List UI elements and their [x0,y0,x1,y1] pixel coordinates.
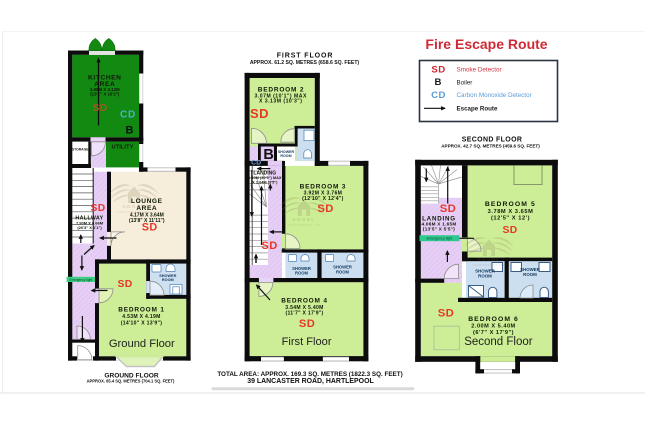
svg-text:2.00M X 5.40M: 2.00M X 5.40M [471,324,515,330]
svg-text:SECOND FLOOR: SECOND FLOOR [462,136,523,143]
svg-text:(12'5" X 12'): (12'5" X 12') [491,215,530,221]
svg-text:SD: SD [502,225,517,236]
svg-text:Escape Route: Escape Route [457,106,498,113]
svg-text:CD: CD [120,110,136,121]
svg-text:B: B [263,147,273,163]
svg-text:CD: CD [431,90,446,101]
svg-text:APPROX. 42.7 SQ. METRES (459.6: APPROX. 42.7 SQ. METRES (459.6 SQ. FEET) [441,144,540,149]
svg-text:4.53M X 4.19M: 4.53M X 4.19M [122,314,160,320]
svg-text:SD: SD [438,308,455,320]
svg-text:UTILITY: UTILITY [112,145,134,151]
svg-text:B: B [435,77,442,88]
svg-text:B: B [126,125,134,137]
svg-text:BEDROOM 6: BEDROOM 6 [468,316,519,323]
svg-text:ROOM: ROOM [295,271,309,276]
svg-text:SD: SD [250,106,269,121]
svg-text:SD: SD [261,240,277,252]
svg-text:Emergency light: Emergency light [69,278,92,282]
svg-text:SD: SD [431,64,445,75]
svg-text:BEDROOM 5: BEDROOM 5 [485,201,536,208]
svg-text:BEDROOM 3: BEDROOM 3 [300,183,347,190]
svg-text:SD: SD [117,279,132,290]
svg-text:LOUNGE: LOUNGE [131,198,163,205]
svg-text:FIRST FLOOR: FIRST FLOOR [277,53,334,60]
svg-text:SD: SD [317,203,333,215]
svg-text:Carbon Monoxide Detector: Carbon Monoxide Detector [457,92,532,99]
svg-text:Smoke Detector: Smoke Detector [457,67,502,74]
svg-text:BEDROOM 1: BEDROOM 1 [118,307,165,314]
svg-text:ROOM: ROOM [478,273,492,278]
svg-text:(12'10" X 12'4"): (12'10" X 12'4") [302,196,344,202]
svg-text:(13'1" X 10'2"): (13'1" X 10'2") [90,91,120,96]
svg-text:39 LANCASTER ROAD, HARTLEPOOL: 39 LANCASTER ROAD, HARTLEPOOL [247,378,374,385]
svg-text:ROOM: ROOM [523,272,537,277]
svg-text:X 3.13M (10'3"): X 3.13M (10'3") [259,99,302,105]
svg-text:(11'7" X 17'9"): (11'7" X 17'9") [285,311,323,317]
svg-text:ROOM: ROOM [336,269,350,274]
svg-text:(6'7" X 17'9"): (6'7" X 17'9") [473,330,514,336]
svg-text:SD: SD [440,203,457,215]
svg-text:ROOM: ROOM [280,154,291,158]
svg-text:3.78M X 3.65M: 3.78M X 3.65M [488,209,534,215]
svg-text:Second Floor: Second Floor [464,336,533,348]
svg-text:Fire Escape Route: Fire Escape Route [425,36,547,52]
svg-text:X 1.04M (3'5"): X 1.04M (3'5") [252,180,278,185]
svg-text:SD: SD [90,203,105,214]
svg-text:APPROX. 61.2 SQ. METRES (658.6: APPROX. 61.2 SQ. METRES (658.6 SQ. FEET) [250,60,360,66]
svg-text:(13'5" X 5'5"): (13'5" X 5'5") [423,226,455,231]
svg-text:TOTAL AREA: APPROX. 169.3 SQ.: TOTAL AREA: APPROX. 169.3 SQ. METRES (18… [217,371,402,378]
svg-text:Ground Floor: Ground Floor [109,338,175,350]
svg-text:(14'10" X 13'9"): (14'10" X 13'9") [121,320,163,326]
svg-text:First Floor: First Floor [282,336,332,348]
svg-text:AREA: AREA [136,205,157,212]
svg-text:Boiler: Boiler [457,79,473,86]
svg-text:BEDROOM 4: BEDROOM 4 [281,298,328,305]
svg-text:SD: SD [299,318,315,330]
svg-text:STORAGE: STORAGE [72,148,89,152]
svg-text:(26'3" X 1'1"): (26'3" X 1'1") [77,225,102,230]
svg-text:Emergency light: Emergency light [427,237,453,241]
svg-text:ROOM: ROOM [162,278,174,282]
svg-text:CD: CD [251,160,261,167]
svg-text:SD: SD [92,103,107,114]
svg-text:SD: SD [142,222,158,234]
svg-text:APPROX. 65.4 SQ. METRES (704.1: APPROX. 65.4 SQ. METRES (704.1 SQ. FEET) [87,379,175,384]
